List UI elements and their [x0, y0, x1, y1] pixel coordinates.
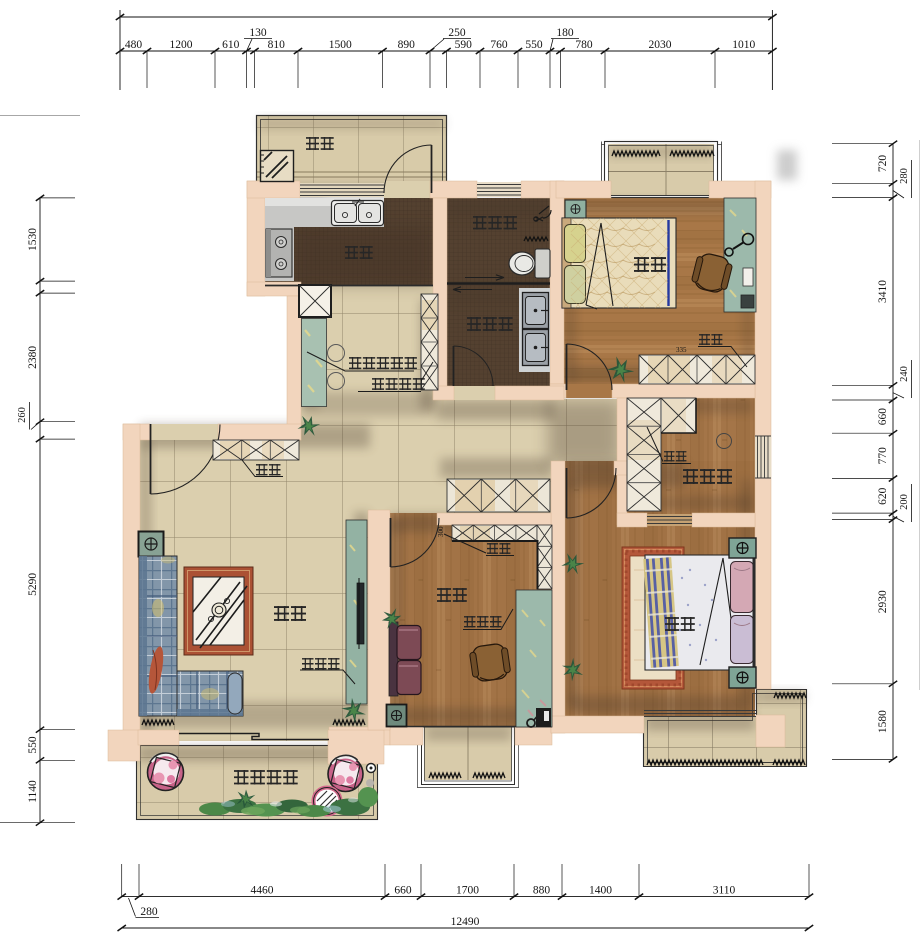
- svg-text:335: 335: [676, 346, 687, 354]
- svg-text:280: 280: [140, 906, 158, 918]
- svg-text:660: 660: [877, 408, 889, 426]
- svg-text:620: 620: [877, 487, 889, 505]
- svg-text:550: 550: [27, 736, 39, 754]
- svg-text:660: 660: [394, 885, 412, 897]
- svg-text:300: 300: [437, 526, 445, 537]
- svg-text:240: 240: [899, 366, 910, 382]
- svg-text:1500: 1500: [329, 39, 352, 51]
- svg-text:4460: 4460: [251, 885, 274, 897]
- svg-text:720: 720: [877, 155, 889, 173]
- svg-text:250: 250: [448, 27, 466, 39]
- svg-text:200: 200: [899, 494, 910, 510]
- svg-text:810: 810: [268, 39, 286, 51]
- svg-text:1010: 1010: [732, 39, 755, 51]
- svg-text:1400: 1400: [589, 885, 612, 897]
- svg-text:1140: 1140: [27, 780, 39, 803]
- svg-text:480: 480: [125, 39, 143, 51]
- svg-text:280: 280: [899, 168, 910, 184]
- svg-text:1580: 1580: [877, 710, 889, 733]
- svg-text:1530: 1530: [27, 228, 39, 251]
- svg-text:2030: 2030: [649, 39, 672, 51]
- svg-text:890: 890: [398, 39, 416, 51]
- svg-text:260: 260: [17, 407, 28, 423]
- svg-text:760: 760: [490, 39, 508, 51]
- svg-text:880: 880: [533, 885, 551, 897]
- svg-text:770: 770: [877, 447, 889, 465]
- svg-text:180: 180: [556, 27, 574, 39]
- svg-text:5290: 5290: [27, 573, 39, 596]
- svg-text:1700: 1700: [456, 885, 479, 897]
- svg-text:2930: 2930: [877, 590, 889, 613]
- svg-text:780: 780: [575, 39, 593, 51]
- svg-text:12490: 12490: [451, 916, 480, 928]
- svg-text:610: 610: [222, 39, 240, 51]
- svg-text:3110: 3110: [713, 885, 736, 897]
- svg-text:2380: 2380: [27, 346, 39, 369]
- svg-text:550: 550: [525, 39, 543, 51]
- svg-text:1200: 1200: [170, 39, 193, 51]
- svg-text:3410: 3410: [877, 280, 889, 303]
- svg-text:130: 130: [249, 27, 267, 39]
- svg-text:590: 590: [455, 39, 473, 51]
